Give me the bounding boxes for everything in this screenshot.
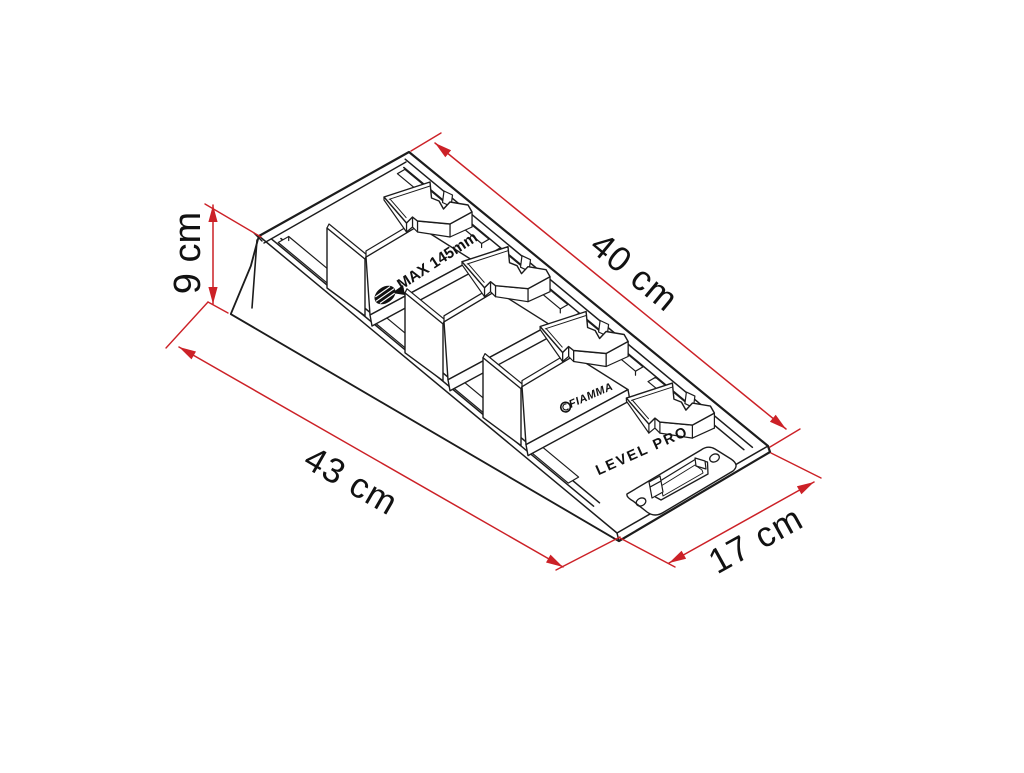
- svg-text:9 cm: 9 cm: [167, 212, 209, 294]
